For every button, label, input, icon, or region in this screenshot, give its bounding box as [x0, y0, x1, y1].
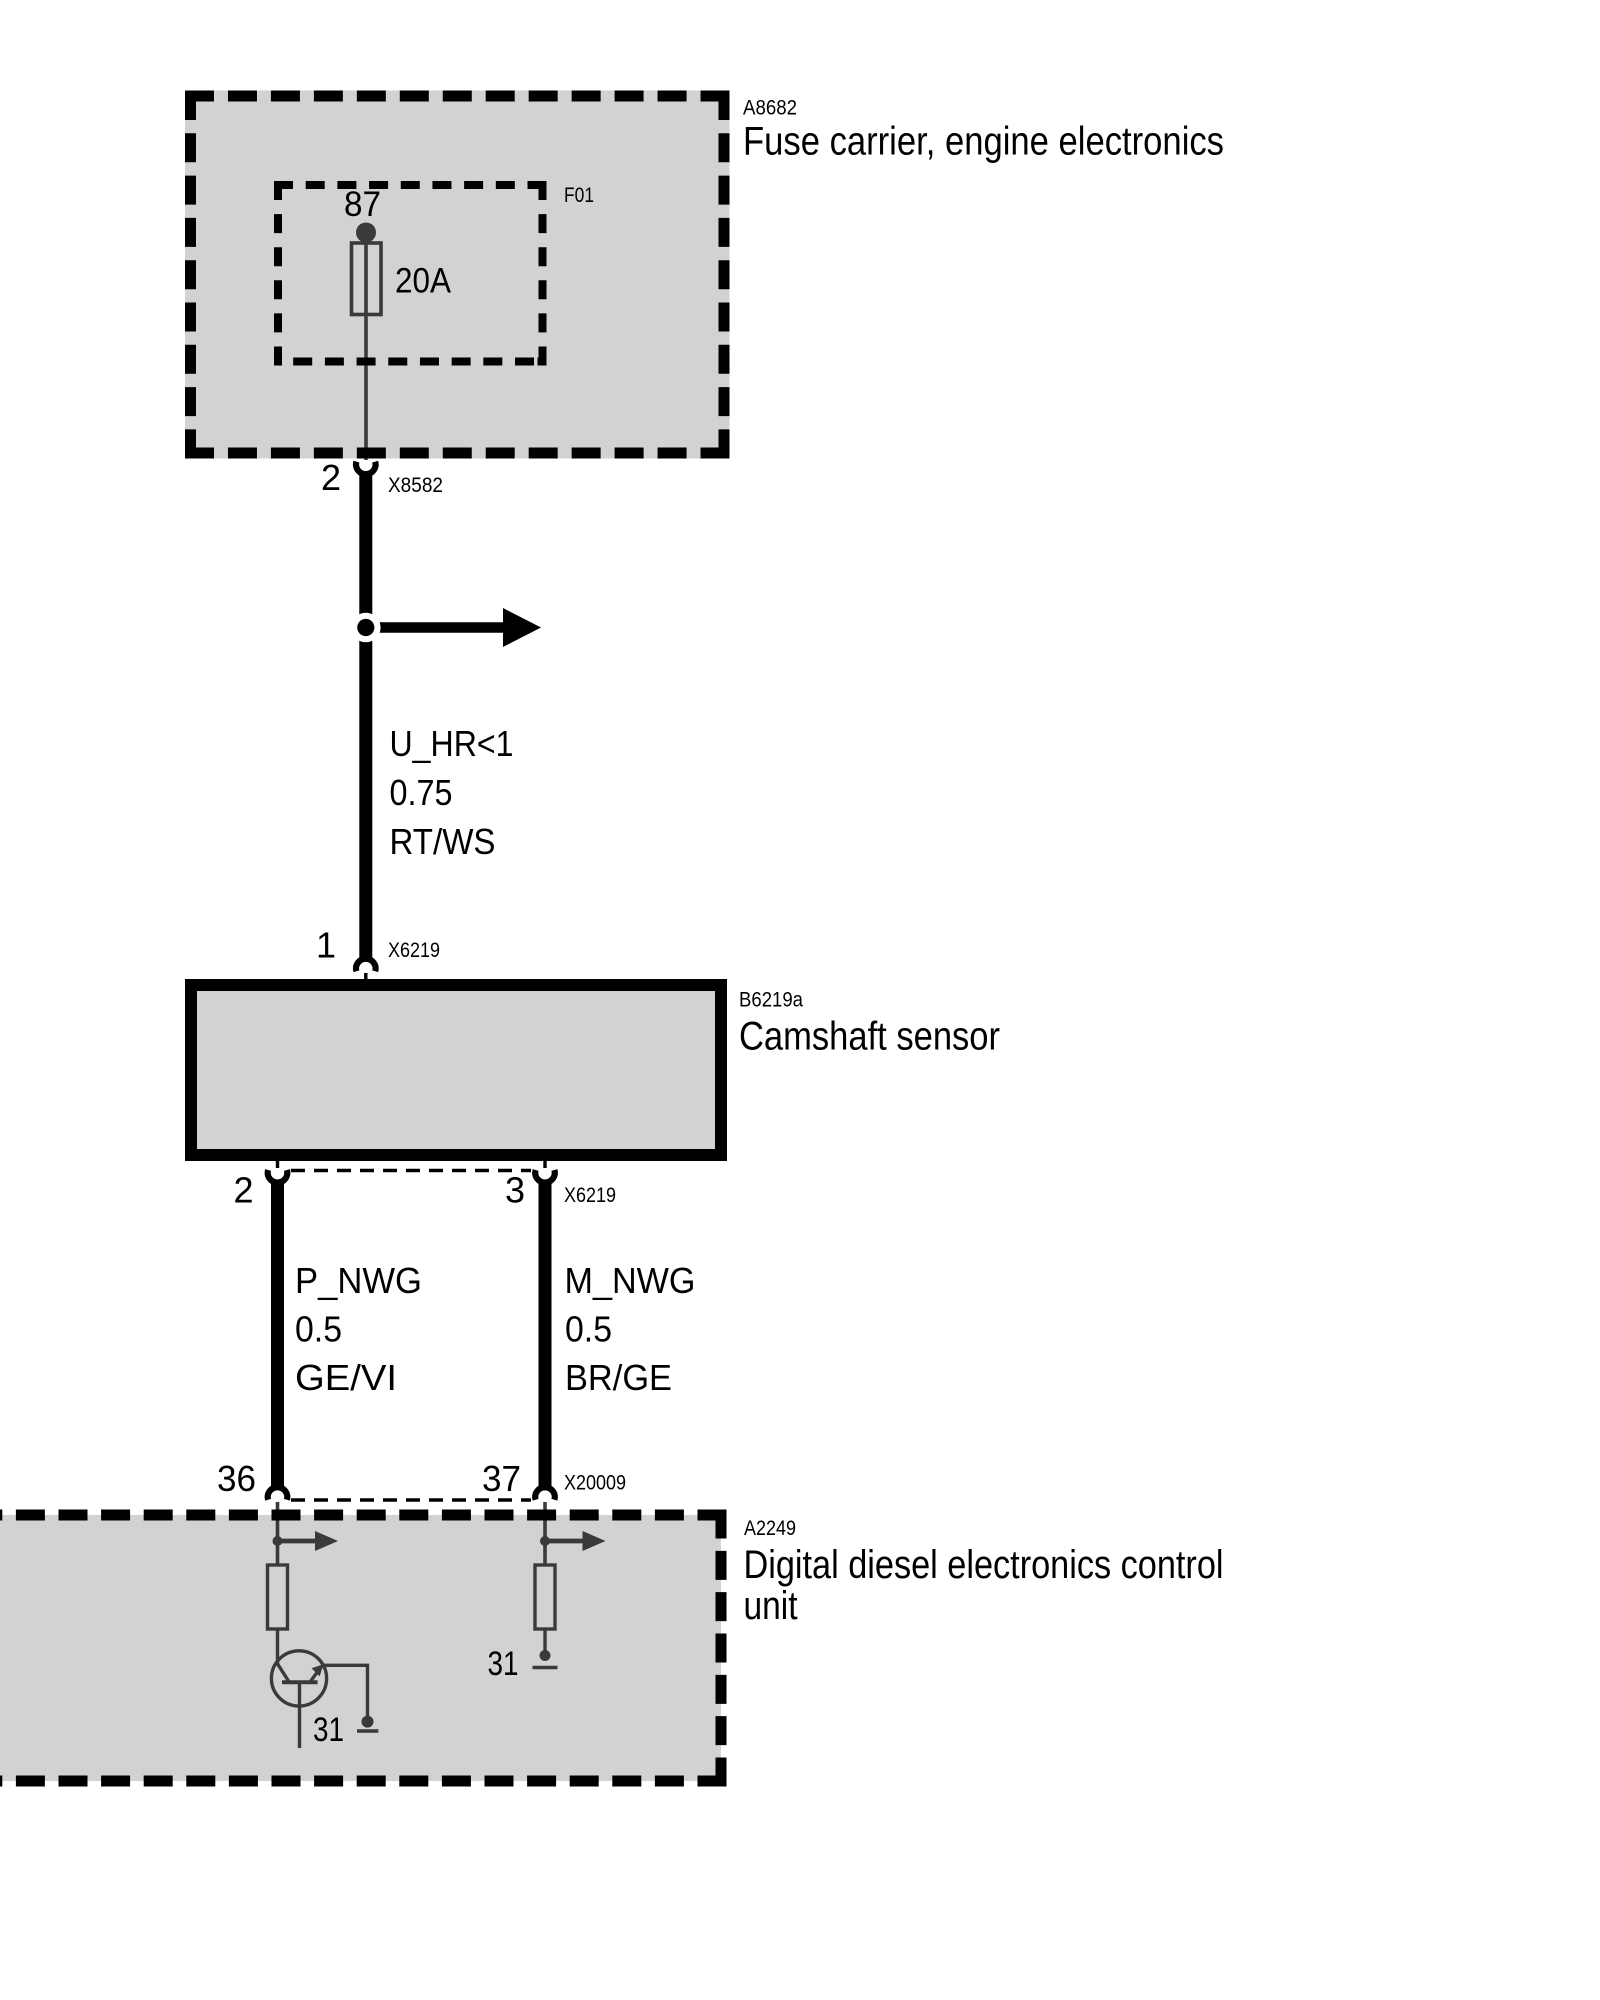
svg-text:M_NWG: M_NWG	[565, 1260, 696, 1301]
svg-text:0.75: 0.75	[390, 772, 453, 813]
svg-text:2: 2	[321, 457, 341, 498]
svg-text:0.5: 0.5	[295, 1309, 342, 1350]
svg-text:1: 1	[316, 925, 336, 966]
svg-text:P_NWG: P_NWG	[295, 1260, 422, 1301]
svg-text:2: 2	[233, 1170, 253, 1211]
svg-text:20A: 20A	[395, 262, 452, 301]
svg-text:X6219: X6219	[564, 1184, 616, 1207]
svg-text:B6219a: B6219a	[739, 989, 803, 1012]
svg-text:Camshaft sensor: Camshaft sensor	[739, 1015, 1000, 1059]
svg-text:3: 3	[505, 1170, 525, 1211]
svg-text:X20009: X20009	[564, 1472, 626, 1495]
svg-text:BR/GE: BR/GE	[565, 1357, 672, 1398]
svg-text:X6219: X6219	[388, 939, 440, 962]
svg-text:A2249: A2249	[744, 1517, 796, 1540]
svg-text:37: 37	[482, 1458, 521, 1499]
svg-text:F01: F01	[564, 184, 594, 207]
svg-text:A8682: A8682	[743, 97, 797, 120]
svg-text:0.5: 0.5	[565, 1309, 612, 1350]
svg-text:U_HR<1: U_HR<1	[390, 723, 514, 764]
svg-text:36: 36	[217, 1458, 256, 1499]
svg-text:X8582: X8582	[388, 474, 443, 497]
svg-text:87: 87	[344, 185, 381, 224]
svg-text:GE/VI: GE/VI	[295, 1357, 397, 1398]
svg-text:Digital diesel electronics con: Digital diesel electronics control	[744, 1543, 1224, 1587]
svg-text:RT/WS: RT/WS	[390, 821, 496, 862]
svg-text:unit: unit	[744, 1584, 798, 1628]
svg-text:Fuse carrier, engine electroni: Fuse carrier, engine electronics	[743, 120, 1224, 164]
svg-text:31: 31	[488, 1645, 519, 1683]
svg-text:31: 31	[313, 1711, 344, 1749]
